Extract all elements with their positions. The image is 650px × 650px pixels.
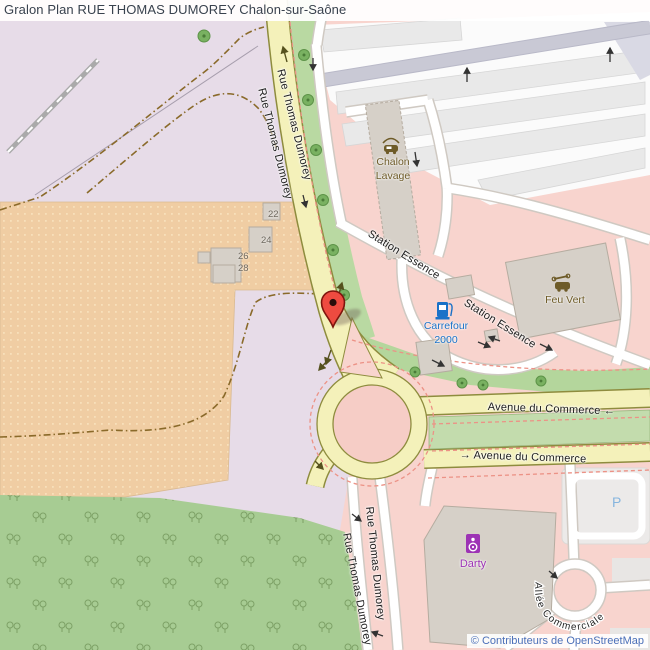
house-number-26: 26 [238, 251, 249, 262]
fuel-station-canopy [445, 275, 474, 299]
house-number-24: 24 [261, 235, 272, 246]
poi-darty: Darty [448, 557, 498, 571]
darty-building [424, 506, 556, 648]
poi-carrefour-2000: Carrefour 2000 [413, 320, 479, 347]
parking-p-label: P [612, 494, 621, 510]
osm-attribution-link[interactable]: © Contributeurs de OpenStreetMap [467, 634, 648, 648]
map-canvas[interactable]: Allée Commerciale [0, 0, 650, 650]
house-number-22: 22 [268, 209, 279, 220]
house-number-28: 28 [238, 263, 249, 274]
poi-feu-vert: Feu Vert [535, 294, 595, 308]
electronics-store-icon [466, 534, 480, 553]
map-container[interactable]: Allée Commerciale Gralon Plan RUE THOMAS… [0, 0, 650, 650]
poi-chalon-lavage: Chalon Lavage [363, 156, 423, 183]
page-title: Gralon Plan RUE THOMAS DUMOREY Chalon-su… [4, 2, 346, 17]
title-bar: Gralon Plan RUE THOMAS DUMOREY Chalon-su… [0, 0, 650, 21]
roundabout-center [333, 385, 411, 463]
